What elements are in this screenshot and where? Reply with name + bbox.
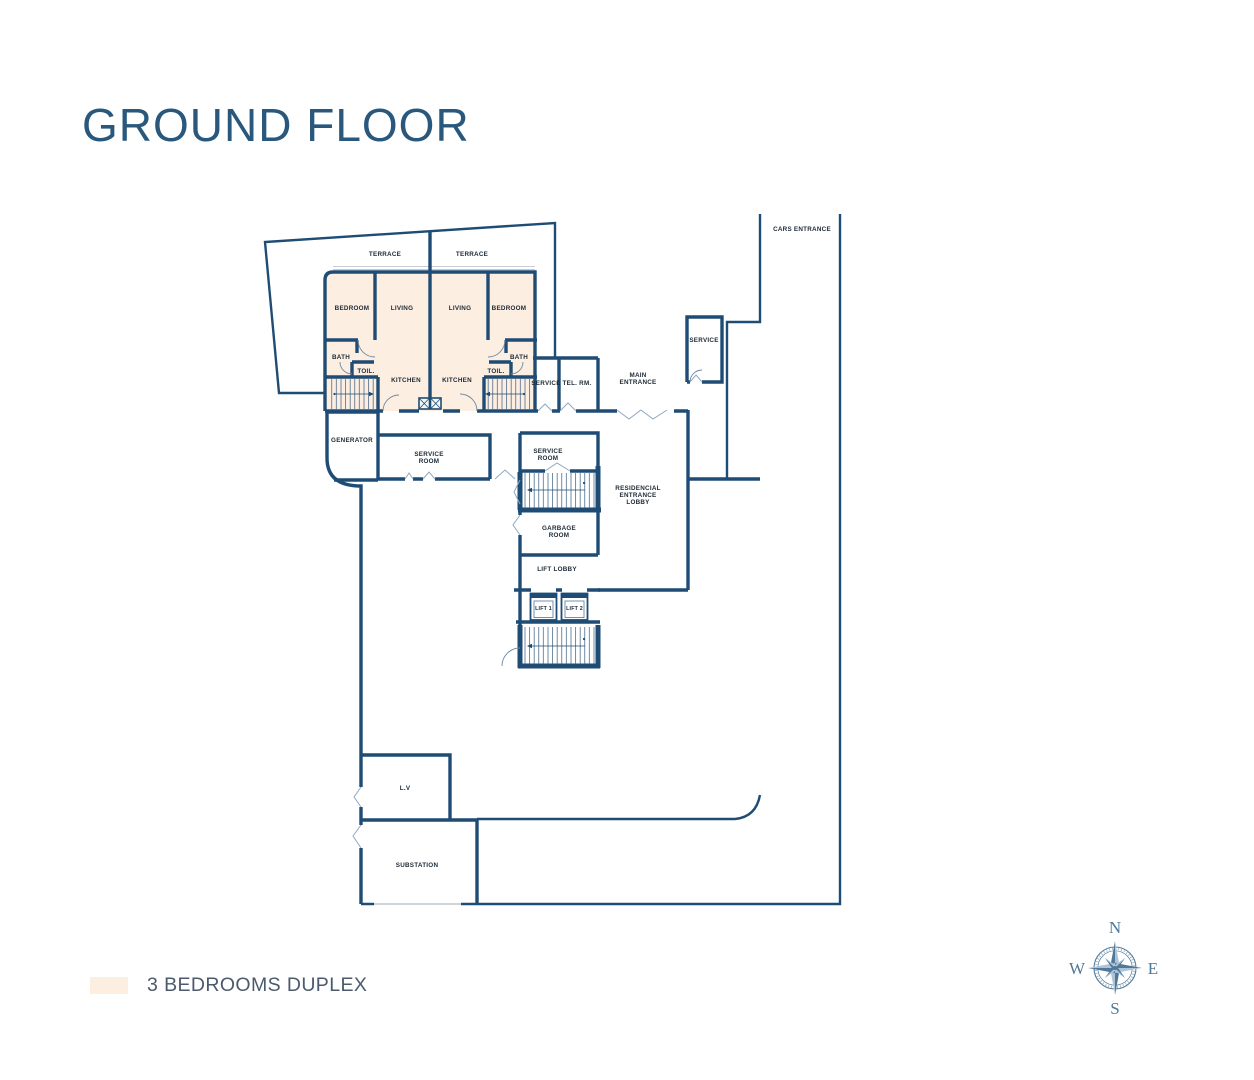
compass-east-label: E [1148, 959, 1158, 978]
compass-north-label: N [1109, 918, 1121, 937]
room-label-lift-2: LIFT 2 [566, 606, 583, 612]
room-label-lv: L.V [400, 785, 411, 792]
room-label-kitchen-left: KITCHEN [391, 377, 421, 384]
room-label-toilet-left: TOIL. [357, 368, 374, 375]
room-label-kitchen-right: KITCHEN [442, 377, 472, 384]
room-label-garbage-room-2: ROOM [549, 532, 570, 539]
room-label-cars-entrance: CARS ENTRANCE [773, 226, 831, 233]
room-label-bath-left: BATH [332, 354, 350, 361]
room-label-terrace-right: TERRACE [456, 251, 488, 258]
room-label-tel-room: TEL. RM. [563, 380, 592, 387]
compass-rose: N S E W [1069, 918, 1158, 1018]
room-label-residencial-lobby-2: ENTRANCE [620, 492, 657, 499]
room-label-terrace-left: TERRACE [369, 251, 401, 258]
room-label-toilet-right: TOIL. [487, 368, 504, 375]
room-label-bedroom-right: BEDROOM [492, 305, 527, 312]
room-label-living-right: LIVING [449, 305, 472, 312]
floor-plan-drawing: TERRACE TERRACE BEDROOM LIVING LIVING BE… [0, 0, 1254, 1080]
room-label-service-ne: SERVICE [689, 337, 718, 344]
room-label-bath-right: BATH [510, 354, 528, 361]
legend-label: 3 BEDROOMS DUPLEX [147, 974, 367, 997]
room-label-residencial-lobby-1: RESIDENCIAL [615, 485, 660, 492]
room-label-lift-lobby: LIFT LOBBY [537, 566, 577, 573]
door-opening-marks [353, 375, 702, 848]
stair-core-mid [522, 473, 596, 508]
room-label-garbage-room-1: GARBAGE [542, 525, 576, 532]
room-label-bedroom-left: BEDROOM [335, 305, 370, 312]
stair-core-lower [522, 627, 596, 664]
room-label-service: SERVICE [531, 380, 560, 387]
terrace-edge-lines [333, 267, 535, 270]
floor-plan-page: GROUND FLOOR [0, 0, 1254, 1080]
room-label-substation: SUBSTATION [396, 862, 439, 869]
room-label-service-room-right-2: ROOM [538, 455, 559, 462]
room-label-service-room-right-1: SERVICE [533, 448, 562, 455]
room-label-main-entrance-1: MAIN [629, 372, 646, 379]
compass-west-label: W [1069, 959, 1086, 978]
room-label-service-room-left-2: ROOM [419, 458, 440, 465]
room-label-lift-1: LIFT 1 [535, 606, 552, 612]
room-label-main-entrance-2: ENTRANCE [620, 379, 657, 386]
room-label-generator: GENERATOR [331, 437, 373, 444]
shaft-boxes [419, 398, 441, 409]
legend-swatch [90, 977, 128, 994]
compass-south-label: S [1110, 999, 1119, 1018]
room-label-residencial-lobby-3: LOBBY [626, 499, 650, 506]
legend: 3 BEDROOMS DUPLEX [90, 974, 367, 997]
room-label-living-left: LIVING [391, 305, 414, 312]
compass-star [1088, 941, 1142, 995]
room-label-service-room-left-1: SERVICE [414, 451, 443, 458]
